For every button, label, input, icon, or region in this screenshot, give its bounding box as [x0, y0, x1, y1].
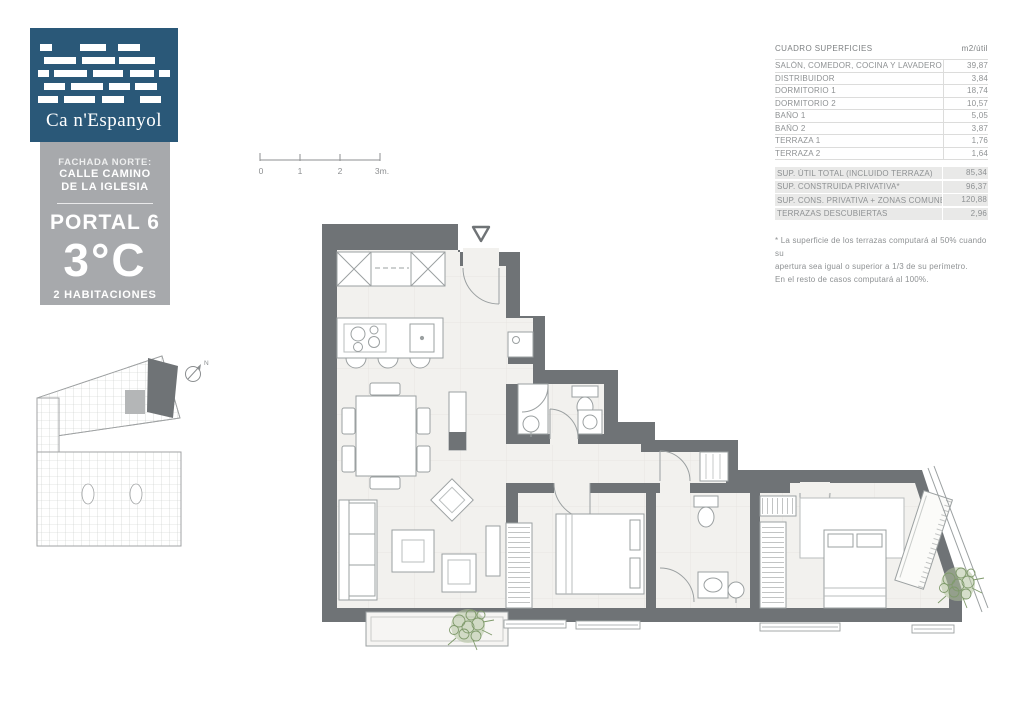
site-plan-highlighted-unit	[147, 358, 178, 418]
site-plan-adjacent-unit	[125, 390, 145, 414]
table-footnote: * La superficie de los terrazas computar…	[775, 234, 988, 286]
street-line-2: DE LA IGLESIA	[40, 181, 170, 194]
surface-row: DISTRIBUIDOR3,84	[775, 72, 988, 85]
street-line-1: CALLE CAMINO	[40, 168, 170, 181]
compass-label: N	[204, 360, 209, 367]
scale-bar: 0 1 2 3m.	[256, 150, 392, 180]
sofa	[339, 500, 377, 600]
total-row: SUP. CONS. PRIVATIVA + ZONAS COMUNES120,…	[775, 194, 988, 206]
scale-label-0: 0	[259, 166, 264, 176]
total-row: TERRAZAS DESCUBIERTAS2,96	[775, 208, 988, 220]
brand-name: Ca n'Espanyol	[30, 110, 178, 132]
surface-row: DORMITORIO 118,74	[775, 84, 988, 97]
footnote-line: apertura sea igual o superior a 1/3 de s…	[775, 260, 988, 273]
terrace-1	[366, 609, 508, 650]
entry-arrow-icon	[473, 227, 489, 241]
total-row: SUP. ÚTIL TOTAL (INCLUIDO TERRAZA)85,34	[775, 167, 988, 179]
unit-number: 3°C	[40, 235, 170, 285]
brand-logo: Ca n'Espanyol	[30, 28, 178, 142]
table-title: CUADRO SUPERFICIES	[775, 44, 872, 53]
unit-info-panel: FACHADA NORTE: CALLE CAMINO DE LA IGLESI…	[40, 142, 170, 305]
surface-row: SALÓN, COMEDOR, COCINA Y LAVADERO39,87	[775, 59, 988, 72]
surface-row: TERRAZA 21,64	[775, 147, 988, 160]
footnote-line: En el resto de casos computará al 100%.	[775, 273, 988, 286]
table-unit-header: m2/útil	[962, 44, 988, 53]
scale-label-3: 3m.	[375, 166, 389, 176]
bed-2	[556, 514, 644, 594]
portal-label: PORTAL 6	[40, 211, 170, 235]
facade-label: FACHADA NORTE:	[40, 157, 170, 168]
surface-rows: SALÓN, COMEDOR, COCINA Y LAVADERO39,87DI…	[775, 59, 988, 160]
floor-plan-sheet: { "brand": { "name": "Ca n'Espanyol" }, …	[0, 0, 1024, 705]
surface-totals: SUP. ÚTIL TOTAL (INCLUIDO TERRAZA)85,34S…	[775, 167, 988, 220]
total-row: SUP. CONSTRUIDA PRIVATIVA*96,37	[775, 181, 988, 193]
north-compass-icon: N	[186, 360, 210, 382]
surfaces-table: CUADRO SUPERFICIES m2/útil SALÓN, COMEDO…	[775, 44, 988, 286]
surface-row: DORMITORIO 210,57	[775, 97, 988, 110]
site-plan: N	[25, 348, 220, 568]
rooms-label: 2 HABITACIONES	[40, 289, 170, 301]
panel-divider	[57, 203, 153, 204]
armchair	[442, 554, 476, 592]
scale-label-1: 1	[298, 166, 303, 176]
washer-unit	[508, 332, 533, 357]
kitchen-island	[337, 318, 443, 368]
footnote-line: * La superficie de los terrazas computar…	[775, 234, 988, 260]
scale-label-2: 2	[338, 166, 343, 176]
surface-row: BAÑO 15,05	[775, 109, 988, 122]
surface-row: BAÑO 23,87	[775, 122, 988, 135]
tv-column	[449, 392, 466, 450]
coffee-table	[392, 530, 434, 572]
console-table	[486, 526, 500, 576]
hallway-closet	[700, 452, 728, 481]
surface-row: TERRAZA 11,76	[775, 134, 988, 147]
kitchen-counter	[337, 252, 445, 286]
